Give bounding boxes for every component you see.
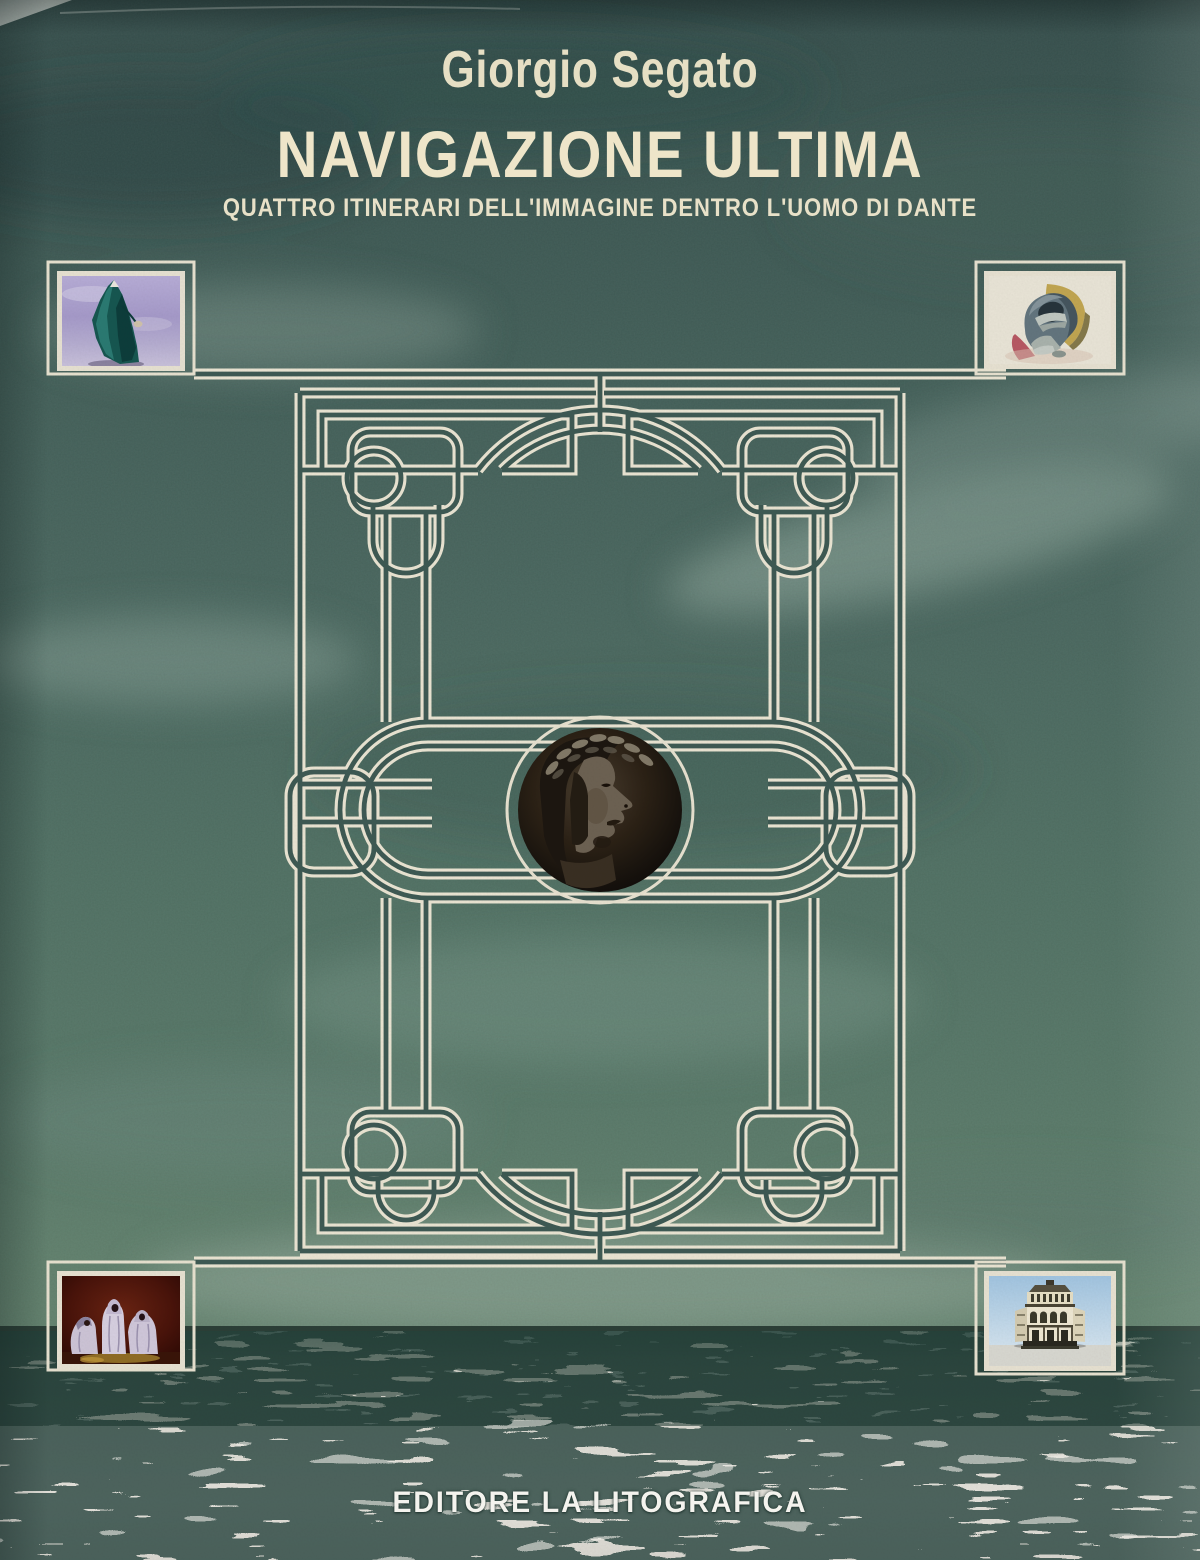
- book-cover: Giorgio Segato NAVIGAZIONE ULTIMA QUATTR…: [0, 0, 1200, 1560]
- book-subtitle: QUATTRO ITINERARI DELL'IMMAGINE DENTRO L…: [72, 194, 1128, 223]
- publisher-name: EDITORE LA LITOGRAFICA: [30, 1486, 1170, 1520]
- author-name: Giorgio Segato: [108, 40, 1092, 100]
- photo-edge-artifacts: [0, 0, 1200, 1560]
- book-title: NAVIGAZIONE ULTIMA: [84, 116, 1116, 192]
- cover-artwork-scene: [0, 0, 1200, 1560]
